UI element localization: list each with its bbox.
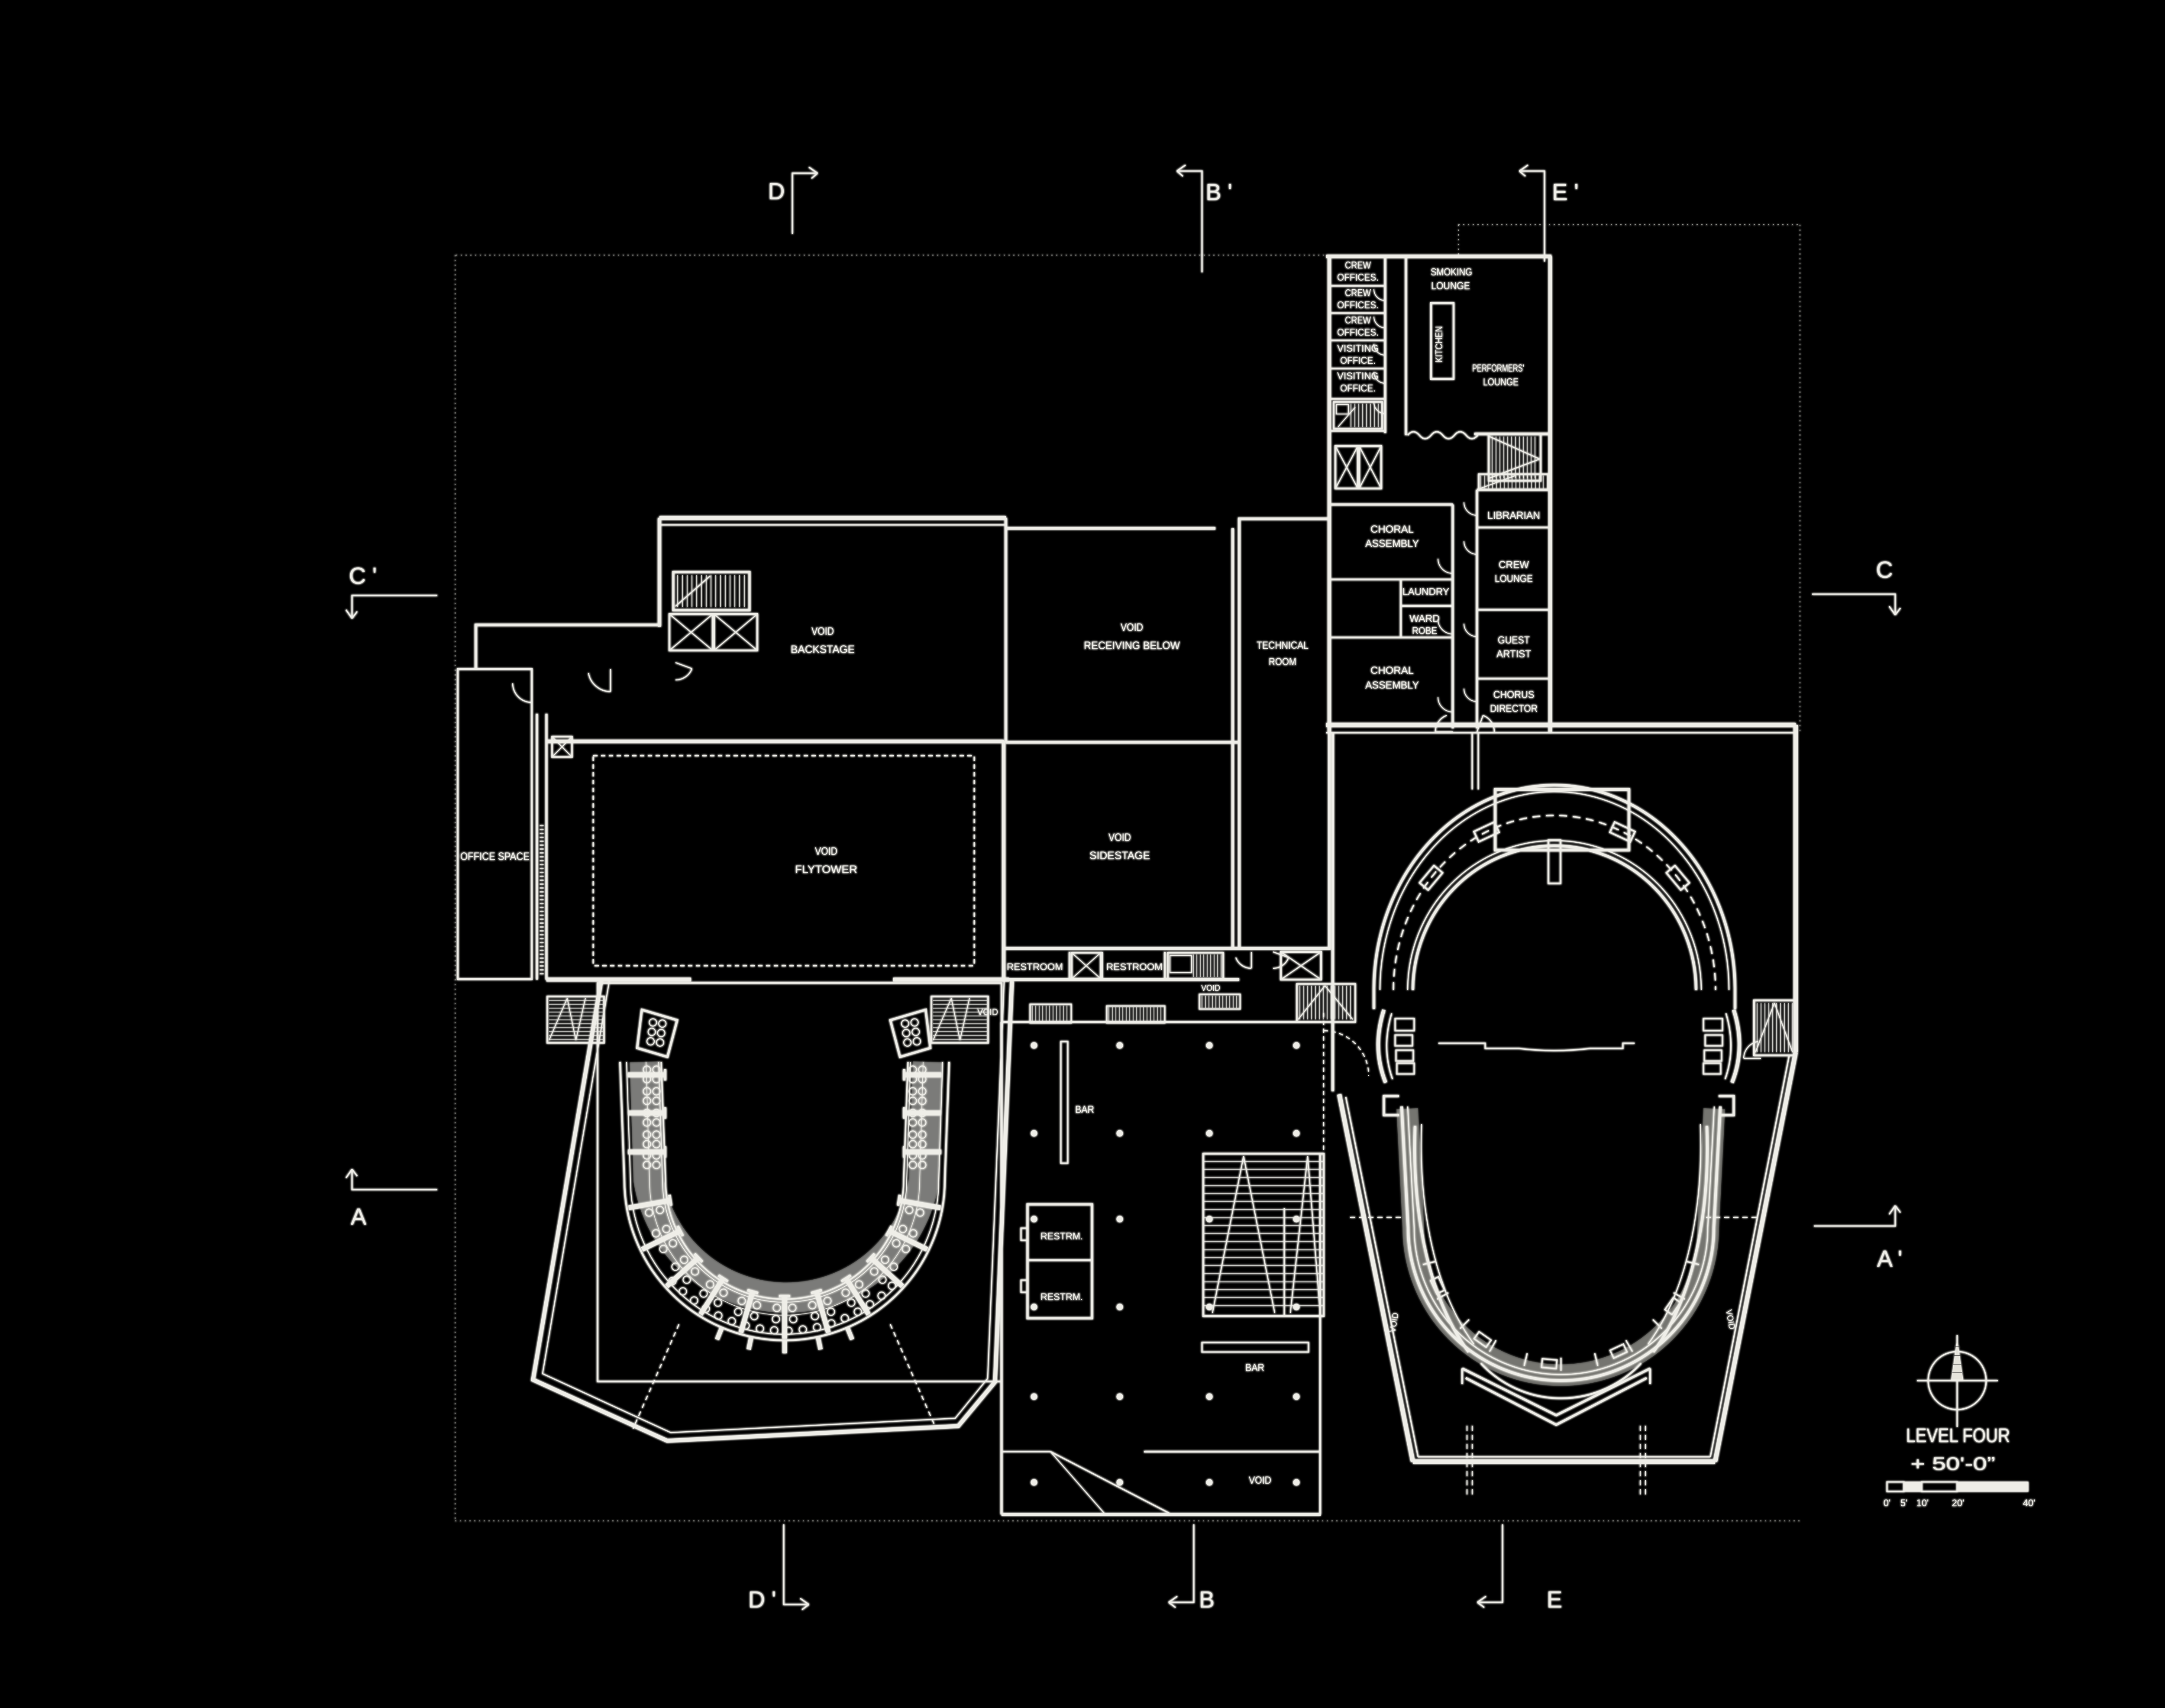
svg-text:LOUNGE: LOUNGE <box>1431 280 1470 292</box>
svg-text:+ 50'-0”: + 50'-0” <box>1910 1453 1995 1474</box>
svg-text:B ': B ' <box>1205 179 1232 205</box>
svg-text:CHORAL: CHORAL <box>1370 665 1414 676</box>
svg-text:20': 20' <box>1952 1498 1965 1508</box>
svg-text:RECEIVING BELOW: RECEIVING BELOW <box>1084 640 1180 652</box>
svg-text:RESTRM.: RESTRM. <box>1040 1231 1083 1242</box>
svg-text:A ': A ' <box>1877 1246 1902 1272</box>
svg-text:BACKSTAGE: BACKSTAGE <box>791 644 855 656</box>
svg-text:OFFICE.: OFFICE. <box>1340 382 1376 394</box>
svg-text:ARTIST: ARTIST <box>1496 648 1531 660</box>
svg-text:CHORUS: CHORUS <box>1493 689 1535 701</box>
svg-text:E ': E ' <box>1552 179 1578 205</box>
svg-text:ROOM: ROOM <box>1269 656 1296 668</box>
svg-text:BAR: BAR <box>1075 1104 1094 1116</box>
svg-text:VOID: VOID <box>1249 1475 1271 1486</box>
svg-text:ASSEMBLY: ASSEMBLY <box>1365 538 1419 550</box>
svg-text:D: D <box>768 178 785 204</box>
svg-text:LOUNGE: LOUNGE <box>1483 376 1519 388</box>
svg-text:SMOKING: SMOKING <box>1431 266 1472 278</box>
svg-text:ASSEMBLY: ASSEMBLY <box>1365 679 1419 691</box>
svg-text:CREW: CREW <box>1345 259 1371 271</box>
svg-text:BAR: BAR <box>1245 1362 1264 1374</box>
svg-text:C: C <box>1876 557 1893 583</box>
svg-text:A: A <box>351 1204 366 1230</box>
svg-text:OFFICES.: OFFICES. <box>1337 327 1379 338</box>
svg-text:VOID: VOID <box>811 625 834 637</box>
svg-text:D ': D ' <box>748 1587 776 1613</box>
svg-text:LEVEL FOUR: LEVEL FOUR <box>1906 1424 2010 1446</box>
svg-text:VISITING: VISITING <box>1337 370 1379 382</box>
svg-text:40': 40' <box>2023 1498 2036 1508</box>
svg-text:LIBRARIAN: LIBRARIAN <box>1487 510 1540 521</box>
svg-text:SIDESTAGE: SIDESTAGE <box>1089 850 1150 862</box>
svg-text:CREW: CREW <box>1345 287 1371 298</box>
svg-text:GUEST: GUEST <box>1498 634 1530 646</box>
svg-text:PERFORMERS': PERFORMERS' <box>1472 362 1524 374</box>
svg-text:OFFICES.: OFFICES. <box>1337 299 1379 311</box>
svg-text:VOID: VOID <box>977 1007 998 1017</box>
svg-text:VISITING: VISITING <box>1337 343 1379 354</box>
svg-text:OFFICE SPACE: OFFICE SPACE <box>460 851 530 863</box>
svg-text:RESTROOM: RESTROOM <box>1007 961 1063 972</box>
svg-text:WARD: WARD <box>1409 613 1440 624</box>
svg-text:E: E <box>1547 1587 1562 1613</box>
svg-text:TECHNICAL: TECHNICAL <box>1257 640 1309 651</box>
svg-text:LOUNGE: LOUNGE <box>1495 573 1533 585</box>
svg-text:KITCHEN: KITCHEN <box>1433 326 1444 362</box>
svg-text:B: B <box>1199 1587 1215 1613</box>
svg-text:DIRECTOR: DIRECTOR <box>1490 703 1538 715</box>
svg-text:RESTROOM: RESTROOM <box>1106 961 1163 972</box>
svg-text:VOID: VOID <box>1108 831 1131 844</box>
svg-text:10': 10' <box>1916 1498 1929 1508</box>
svg-text:CREW: CREW <box>1345 314 1371 326</box>
svg-text:5': 5' <box>1900 1498 1907 1508</box>
svg-text:VOID: VOID <box>1121 621 1143 634</box>
svg-text:FLYTOWER: FLYTOWER <box>795 864 857 876</box>
svg-text:LAUNDRY: LAUNDRY <box>1402 586 1449 597</box>
svg-text:VOID: VOID <box>815 845 837 857</box>
svg-text:OFFICES.: OFFICES. <box>1337 272 1379 283</box>
svg-text:CHORAL: CHORAL <box>1370 524 1414 535</box>
svg-text:OFFICE.: OFFICE. <box>1340 355 1376 366</box>
svg-text:ROBE: ROBE <box>1412 625 1437 636</box>
svg-text:CREW: CREW <box>1499 559 1529 571</box>
svg-text:VOID: VOID <box>1201 983 1220 993</box>
svg-text:0': 0' <box>1884 1498 1890 1508</box>
svg-text:RESTRM.: RESTRM. <box>1040 1291 1083 1302</box>
svg-text:C ': C ' <box>349 563 377 589</box>
